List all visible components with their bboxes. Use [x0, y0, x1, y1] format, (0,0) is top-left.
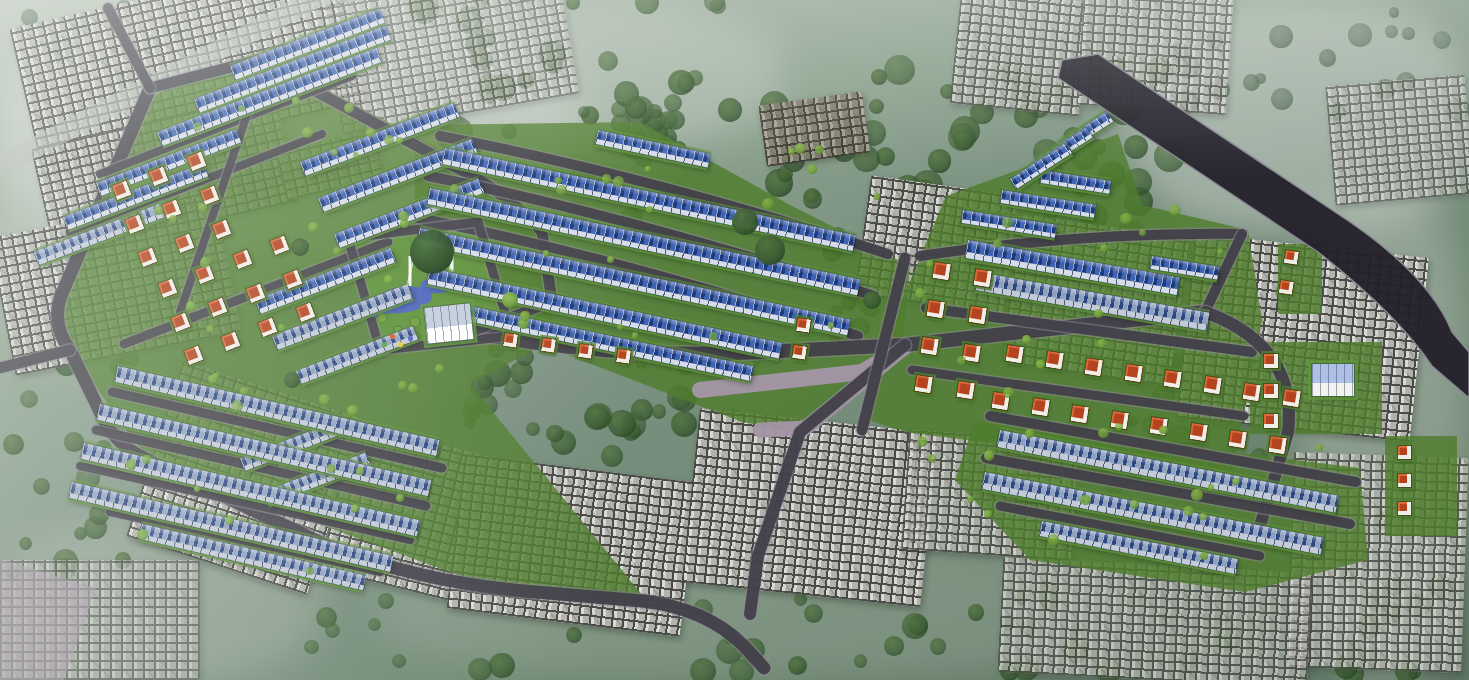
playground-equipment	[398, 342, 403, 347]
tree	[398, 381, 407, 390]
tree	[502, 292, 518, 308]
tree	[926, 260, 934, 268]
tree	[126, 459, 137, 470]
villa-house	[578, 344, 593, 359]
playground-equipment	[408, 336, 413, 341]
villa-house	[1005, 345, 1023, 363]
tree	[1159, 426, 1167, 434]
tree	[828, 322, 834, 328]
villa-house	[1264, 384, 1278, 398]
playground-equipment	[382, 342, 387, 347]
tree	[520, 311, 529, 320]
tree	[331, 149, 338, 156]
tree	[967, 496, 974, 503]
tree	[333, 247, 341, 255]
tree	[984, 510, 992, 518]
park-community-building	[424, 303, 474, 344]
tree	[602, 174, 612, 184]
tree	[863, 291, 881, 309]
villa-house	[974, 269, 992, 287]
playground-equipment	[390, 334, 395, 339]
villa-house	[1084, 358, 1102, 376]
villa-house	[1282, 389, 1300, 407]
east-community-building	[1312, 364, 1354, 396]
tree	[957, 356, 966, 365]
villa-house	[1243, 383, 1261, 401]
tree	[384, 275, 393, 284]
tree	[344, 103, 354, 113]
tree	[278, 324, 285, 331]
tree	[231, 400, 243, 412]
tree	[874, 193, 880, 199]
villa-house	[1164, 370, 1182, 388]
road	[108, 8, 150, 88]
tree	[327, 464, 335, 472]
tree	[238, 105, 245, 112]
tree	[645, 166, 651, 172]
tree	[915, 288, 925, 298]
tree	[1100, 244, 1108, 252]
green-zone	[1385, 436, 1457, 536]
tree	[292, 97, 300, 105]
tree	[732, 209, 758, 235]
tree	[410, 230, 454, 274]
tree	[755, 235, 785, 265]
mauve-road-area	[0, 556, 96, 680]
tree	[200, 257, 210, 267]
villa-house	[792, 345, 807, 360]
tree	[356, 467, 364, 475]
tree	[193, 122, 202, 131]
tree	[1097, 339, 1106, 348]
villa-house	[921, 337, 939, 355]
tree	[1169, 204, 1181, 216]
tree	[384, 135, 394, 145]
villa-house	[1045, 351, 1063, 369]
tree	[154, 206, 163, 215]
villa-house	[956, 381, 974, 399]
tree	[1191, 489, 1202, 500]
tree	[556, 185, 566, 195]
tree	[1208, 484, 1214, 490]
tree	[308, 222, 318, 232]
tree	[788, 148, 795, 155]
park-shrub	[377, 313, 387, 323]
tree	[208, 375, 217, 384]
tree	[1232, 478, 1240, 486]
tree	[351, 504, 360, 513]
villa-house	[503, 333, 518, 348]
tree	[291, 238, 309, 256]
tree	[396, 494, 404, 502]
tree	[1025, 429, 1034, 438]
villa-house	[915, 375, 933, 393]
tree	[1120, 213, 1131, 224]
villa-house	[541, 338, 556, 353]
tree	[398, 211, 408, 221]
villa-house	[1031, 398, 1049, 416]
tree	[815, 145, 824, 154]
tree	[993, 239, 1002, 248]
tree	[302, 127, 313, 138]
villa-house	[796, 318, 811, 333]
villa-house	[616, 349, 631, 364]
villa-house	[1264, 354, 1278, 368]
tree	[984, 450, 994, 460]
tree	[613, 176, 624, 187]
master-plan-rendering	[0, 0, 1469, 680]
villa-house	[1229, 430, 1247, 448]
villa-house	[1124, 364, 1142, 382]
villa-house	[1279, 280, 1294, 295]
villa-house	[1268, 436, 1286, 454]
villa-house	[1264, 414, 1278, 428]
tree	[1200, 552, 1208, 560]
villa-house	[968, 306, 986, 324]
tree	[1315, 444, 1323, 452]
tree	[1098, 428, 1109, 439]
villa-house	[927, 300, 945, 318]
tree	[198, 203, 207, 212]
villa-house	[1203, 376, 1221, 394]
villa-house	[932, 262, 950, 280]
tree	[206, 325, 214, 333]
villa-house	[1070, 405, 1088, 423]
tree	[917, 436, 927, 446]
villa-house	[1398, 474, 1411, 487]
tree	[284, 372, 300, 388]
tree	[137, 529, 148, 540]
villa-house	[1284, 250, 1299, 265]
villa-house	[1189, 423, 1207, 441]
villa-house	[1398, 446, 1411, 459]
villa-house	[1398, 502, 1411, 515]
